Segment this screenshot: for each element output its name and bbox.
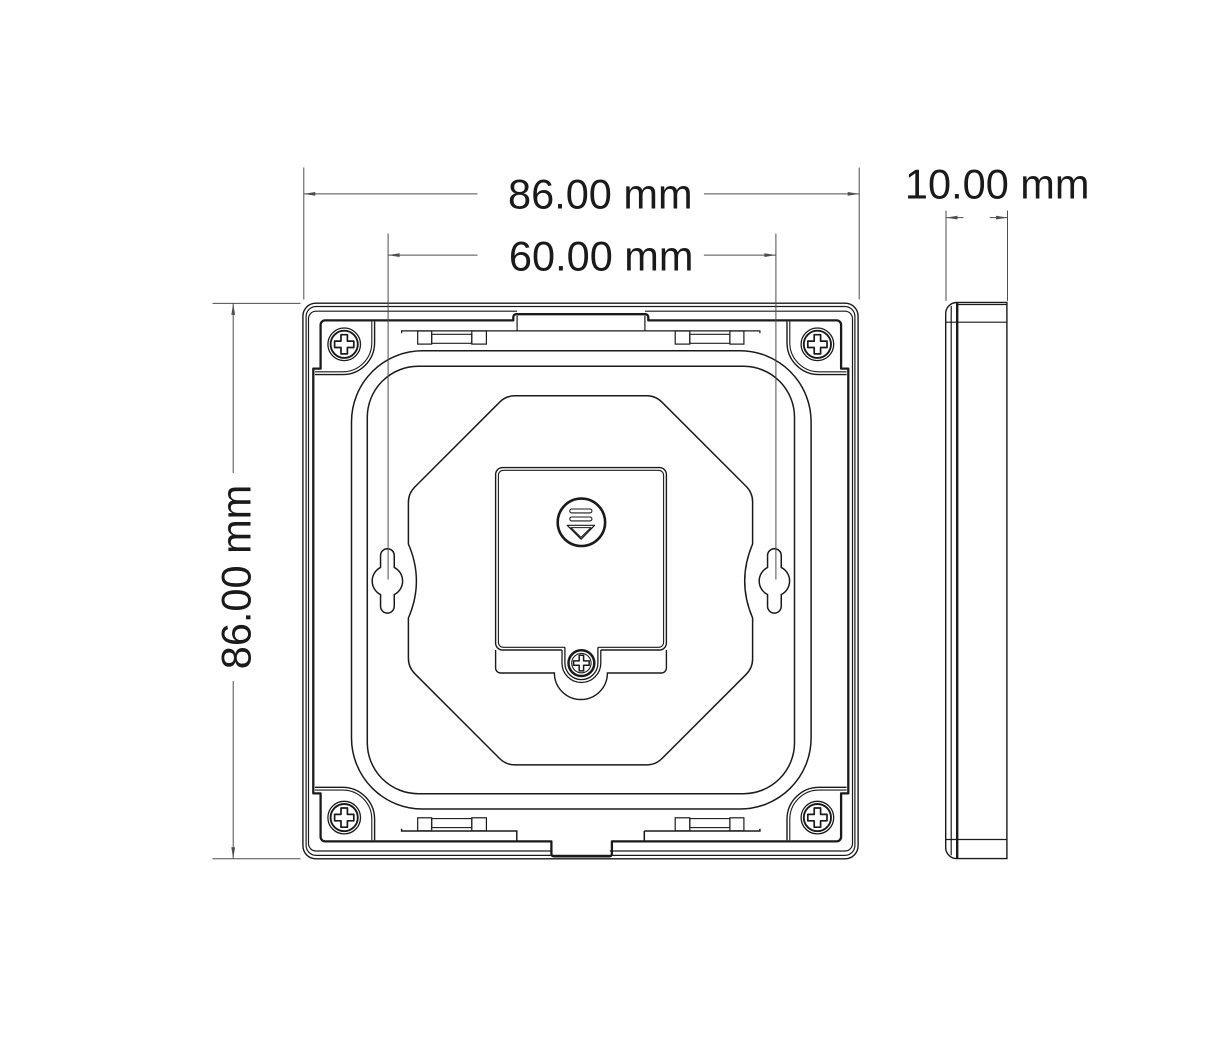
svg-text:86.00 mm: 86.00 mm <box>213 485 260 670</box>
svg-text:86.00 mm: 86.00 mm <box>508 170 693 217</box>
svg-text:60.00 mm: 60.00 mm <box>509 232 694 279</box>
svg-text:10.00 mm: 10.00 mm <box>905 160 1090 207</box>
